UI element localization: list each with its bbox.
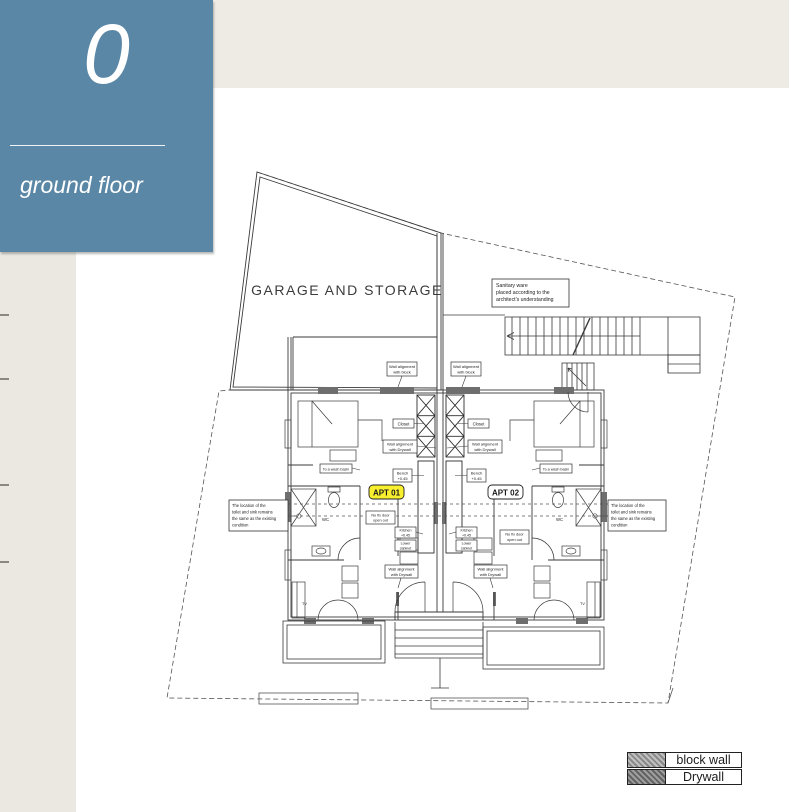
kitchen-appliance xyxy=(474,552,492,564)
svg-text:Wall alignment: Wall alignment xyxy=(388,567,415,572)
entrance-steps xyxy=(395,622,483,688)
svg-text:Wall alignment: Wall alignment xyxy=(453,364,480,369)
wall-legend: block wall Drywall xyxy=(627,752,742,786)
closet-label-left: Closet xyxy=(393,419,414,428)
bed xyxy=(298,401,358,447)
toilet-tank xyxy=(552,487,564,492)
svg-text:cabinet: cabinet xyxy=(461,546,473,550)
svg-text:with block: with block xyxy=(393,370,411,375)
doors xyxy=(318,392,588,620)
svg-text:+0.45: +0.45 xyxy=(397,476,408,481)
svg-text:APT 02: APT 02 xyxy=(492,488,520,497)
wall-drywall-bottom-right: Wall alignment with Drywall xyxy=(474,565,507,578)
svg-text:condition: condition xyxy=(611,523,628,528)
toilet xyxy=(553,493,564,508)
bench-label-left: Bench +0.45 xyxy=(393,469,412,482)
apt-01-tag: APT 01 xyxy=(369,485,404,499)
svg-text:Sanitary ware: Sanitary ware xyxy=(496,283,528,289)
svg-text:The location of the: The location of the xyxy=(611,503,645,508)
toilet xyxy=(329,493,340,508)
svg-text:Wall alignment: Wall alignment xyxy=(472,442,499,447)
svg-text:with Drywall: with Drywall xyxy=(474,447,495,452)
sanitary-note: Sanitary ware placed according to the ar… xyxy=(492,279,569,307)
svg-text:open out: open out xyxy=(507,538,523,542)
svg-text:Lower: Lower xyxy=(401,542,412,546)
no-fix-door-label-left: No fix door open out xyxy=(366,511,395,524)
garage-label: GARAGE AND STORAGE xyxy=(251,282,443,298)
dresser xyxy=(330,450,356,461)
legend-row-block-wall: block wall xyxy=(627,752,742,768)
drywall-swatch xyxy=(627,769,666,785)
property-boundary xyxy=(167,172,735,709)
wc-label-left: WC xyxy=(322,517,329,522)
bed xyxy=(534,401,594,447)
sink xyxy=(562,546,580,556)
tv-label-right: TV xyxy=(580,602,585,606)
tv-label-left: TV xyxy=(302,602,307,606)
wall-block-label-left: Wall alignment with block xyxy=(387,362,417,376)
svg-text:+0.45: +0.45 xyxy=(401,533,410,537)
no-fix-door-label-right: No fix door open out xyxy=(500,530,529,544)
svg-text:cabinet: cabinet xyxy=(400,546,412,550)
annotations: GARAGE AND STORAGE Sanitary ware placed … xyxy=(229,279,666,606)
external-staircase xyxy=(443,315,700,373)
svg-text:with block: with block xyxy=(457,370,475,375)
kitchen-appliance xyxy=(400,552,418,564)
svg-text:Wall alignment: Wall alignment xyxy=(387,442,414,447)
wall-block-label-right: Wall alignment with block xyxy=(451,362,481,376)
svg-text:APT 01: APT 01 xyxy=(373,488,401,497)
patios xyxy=(283,621,604,669)
svg-text:Lower: Lower xyxy=(462,542,473,546)
svg-text:the same as the existing: the same as the existing xyxy=(232,516,277,521)
svg-text:with Drywall: with Drywall xyxy=(391,572,412,577)
svg-text:Bench: Bench xyxy=(471,471,482,476)
svg-text:toilet and sink remains: toilet and sink remains xyxy=(611,510,652,515)
svg-text:No fix door: No fix door xyxy=(505,533,524,537)
svg-text:Wall alignment: Wall alignment xyxy=(389,364,416,369)
entry-door xyxy=(395,582,425,612)
wall-drywall-bottom-left: Wall alignment with Drywall xyxy=(385,565,418,578)
svg-text:+0.45: +0.45 xyxy=(462,533,471,537)
driveway-marking xyxy=(431,698,528,709)
svg-text:To a wash basin: To a wash basin xyxy=(543,467,569,471)
sink xyxy=(312,546,330,556)
legend-row-drywall: Drywall xyxy=(627,769,742,785)
wall-drywall-label-right: Wall alignment with Drywall xyxy=(468,440,502,453)
sofa xyxy=(292,582,305,618)
brochure-page: 0 ground floor xyxy=(0,0,789,812)
bathroom-door xyxy=(532,538,554,560)
svg-text:Closet: Closet xyxy=(473,422,486,427)
svg-text:+0.45: +0.45 xyxy=(471,476,482,481)
wc-label-right: WC xyxy=(556,517,563,522)
wall-drywall-label-left: Wall alignment with Drywall xyxy=(383,440,417,453)
washbasin-label-left: To a wash basin xyxy=(320,464,352,473)
bathroom-door xyxy=(338,538,360,560)
tv-unit xyxy=(493,592,496,606)
dresser xyxy=(536,450,562,461)
svg-text:Kitchen: Kitchen xyxy=(400,529,412,533)
svg-text:To a wash basin: To a wash basin xyxy=(323,467,349,471)
closet-label-right: Closet xyxy=(468,419,489,428)
toilet-note-right: The location of the toilet and sink rema… xyxy=(608,500,666,531)
floor-plan-drawing: GARAGE AND STORAGE Sanitary ware placed … xyxy=(0,0,789,812)
side-table xyxy=(534,583,550,598)
courtyard-door xyxy=(568,392,588,412)
svg-text:open out: open out xyxy=(373,519,389,523)
washbasin-label-right: To a wash basin xyxy=(540,464,572,473)
apt-02-tag: APT 02 xyxy=(488,485,523,499)
svg-text:the same as the existing: the same as the existing xyxy=(611,516,656,521)
svg-text:with Drywall: with Drywall xyxy=(389,447,410,452)
block-wall-swatch xyxy=(627,752,666,768)
svg-text:The location of the: The location of the xyxy=(232,503,266,508)
driveway-marking xyxy=(259,693,358,704)
courtyard-stair xyxy=(562,363,594,390)
svg-text:Kitchen: Kitchen xyxy=(461,529,473,533)
side-table xyxy=(342,583,358,598)
bench-label-right: Bench +0.45 xyxy=(467,469,486,482)
svg-text:architect's understanding: architect's understanding xyxy=(496,297,554,303)
svg-text:placed according to the: placed according to the xyxy=(496,290,550,296)
svg-text:No fix door: No fix door xyxy=(371,514,390,518)
svg-text:with Drywall: with Drywall xyxy=(480,572,501,577)
side-table xyxy=(534,566,550,581)
legend-label: block wall xyxy=(666,752,742,768)
legend-label: Drywall xyxy=(666,769,742,785)
garage-outline xyxy=(230,172,441,390)
svg-text:Wall alignment: Wall alignment xyxy=(477,567,504,572)
svg-text:Bench: Bench xyxy=(397,471,408,476)
toilet-tank xyxy=(328,487,340,492)
svg-text:Closet: Closet xyxy=(398,422,411,427)
svg-text:toilet and sink remains: toilet and sink remains xyxy=(232,510,273,515)
sofa xyxy=(587,582,600,618)
toilet-note-left: The location of the toilet and sink rema… xyxy=(229,500,288,531)
side-table xyxy=(342,566,358,581)
entry-door xyxy=(453,582,483,612)
svg-text:condition: condition xyxy=(232,523,249,528)
